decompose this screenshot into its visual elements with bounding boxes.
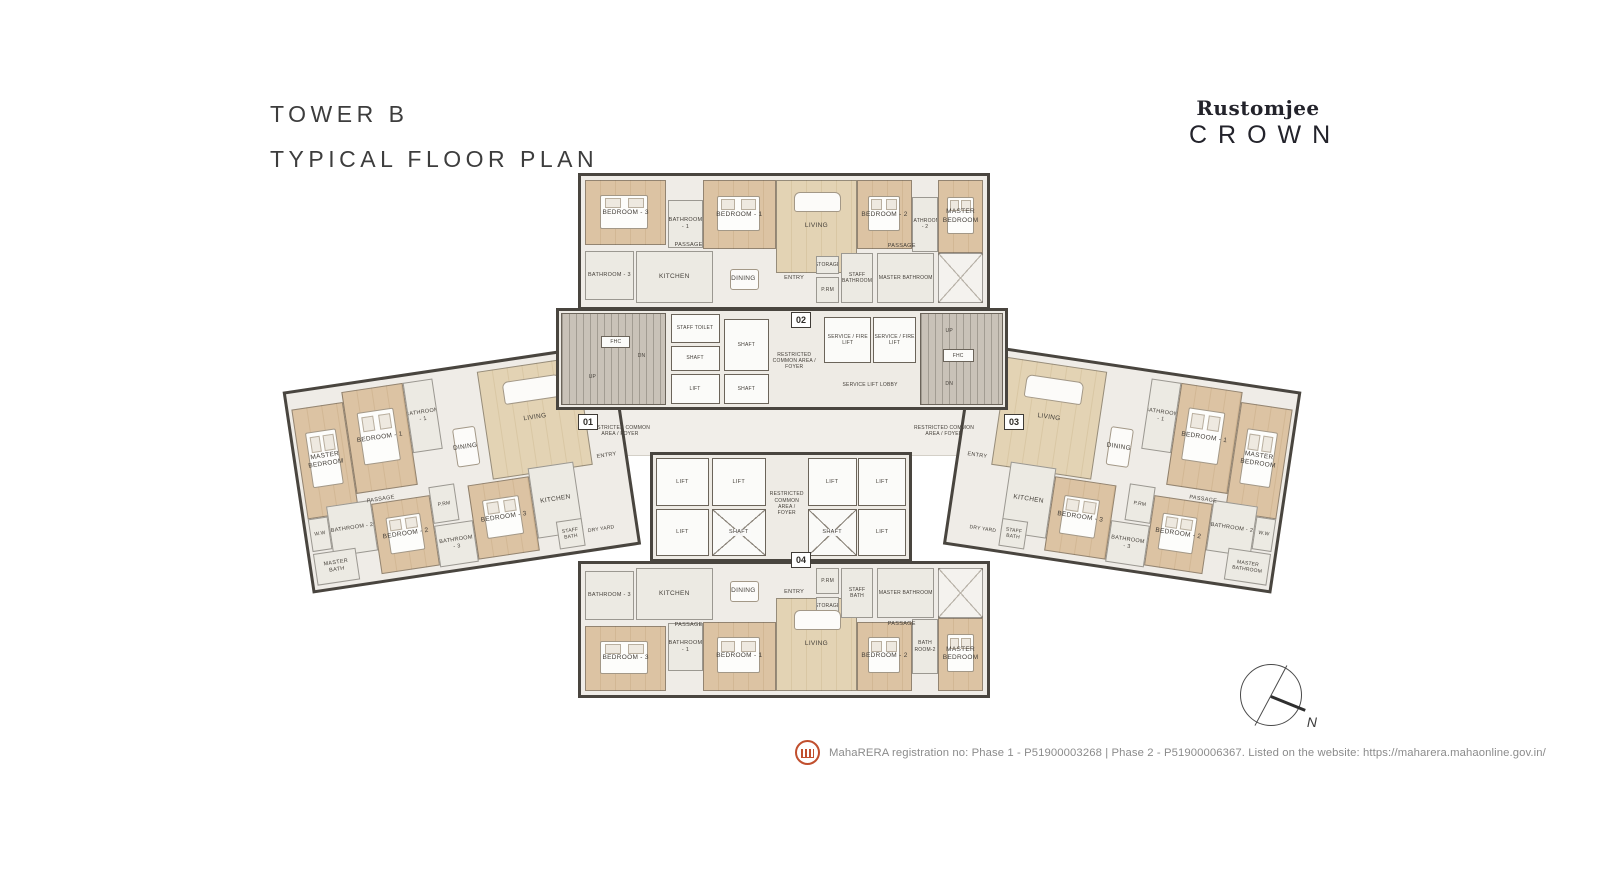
wing-unit-04: BEDROOM - 3BATHROOM - 1BEDROOM - 1LIVING… <box>578 561 990 698</box>
room-entry: ENTRY <box>774 253 815 303</box>
room-label: LIVING <box>1037 412 1061 423</box>
room-label: BATHROOM - 1 <box>1144 407 1179 426</box>
room-label: KITCHEN <box>540 494 572 507</box>
room-dn: DN <box>934 378 965 390</box>
room-dry-yard: DRY YARD <box>585 513 618 545</box>
room-label: SHAFT <box>738 342 755 348</box>
room-master-bedroom: MASTER BEDROOM <box>938 180 983 253</box>
maharera-badge-icon <box>795 740 820 765</box>
room-label: PASSAGE <box>888 243 916 250</box>
room-restricted-common-area-foyer: RESTRICTED COMMON AREA / FOYER <box>771 338 818 384</box>
room-dn: DN <box>626 349 657 362</box>
room-master-bathroom: MASTER BATHROOM <box>877 568 934 618</box>
room-label: KITCHEN <box>659 590 690 598</box>
unit-badge-03: 03 <box>1004 414 1024 430</box>
room-master-bathroom: MASTER BATHROOM <box>1224 548 1271 586</box>
room-label: MASTER BEDROOM <box>939 646 982 662</box>
room-label: LIFT <box>676 529 689 536</box>
room-label: W.W <box>314 530 326 538</box>
room-label: P.RM <box>821 287 834 293</box>
room-label: BEDROOM - 1 <box>356 431 403 446</box>
room-p-rm: P.RM <box>1124 483 1155 524</box>
room-label: BEDROOM - 1 <box>1181 431 1228 446</box>
unit-badge-01: 01 <box>578 414 598 430</box>
room-shaft: SHAFT <box>671 346 720 372</box>
room-label: BATHROOM - 3 <box>588 272 631 279</box>
room-bathroom-3: BATHROOM - 3 <box>434 520 479 567</box>
room-lift: LIFT <box>858 509 907 556</box>
room-label: P.RM <box>437 500 450 508</box>
sofa-icon <box>502 374 562 406</box>
room-bathroom-3: BATHROOM - 3 <box>1105 520 1150 567</box>
room-fhc: FHC <box>943 349 974 361</box>
room-lift: LIFT <box>712 458 766 506</box>
room-hatch <box>938 253 983 303</box>
room-label: UP <box>589 374 596 380</box>
room-label: BATHROOM - 3 <box>1108 534 1147 553</box>
room-master-bedroom: MASTER BEDROOM <box>938 618 983 691</box>
room-fhc: FHC <box>601 336 630 348</box>
room-label: ENTRY <box>967 452 988 462</box>
room-master-bathroom: MASTER BATHROOM <box>877 253 934 303</box>
room-label: SHAFT <box>820 529 844 536</box>
room-label: BEDROOM - 3 <box>603 209 649 217</box>
room-label: STAFF BATH <box>1001 526 1027 542</box>
room-up: UP <box>577 371 608 384</box>
unit-badge-02: 02 <box>791 312 811 328</box>
room-label: SHAFT <box>686 355 703 361</box>
room-label: RESTRICTED COMMON AREA / FOYER <box>913 425 976 438</box>
room-label: SERVICE / FIRE LIFT <box>874 334 914 347</box>
room-label: STAFF BATH <box>558 526 584 542</box>
room-lift: LIFT <box>858 458 907 506</box>
room-label: SERVICE / FIRE LIFT <box>825 334 870 347</box>
room-label: BATHROOM - 2 <box>330 522 373 535</box>
room-shaft: SHAFT <box>724 374 769 404</box>
room-p-rm: P.RM <box>428 483 459 524</box>
room-label: MASTER BATH <box>316 557 358 577</box>
room-label: MASTER BEDROOM <box>1232 449 1284 472</box>
room-label: BATHROOM - 1 <box>405 407 440 426</box>
room-label: DINING <box>731 587 756 595</box>
room-label: BEDROOM - 3 <box>1057 510 1104 525</box>
room-bathroom-3: BATHROOM - 3 <box>585 571 634 621</box>
core-lower: LIFTLIFTLIFTSHAFTRESTRICTED COMMON AREA … <box>650 452 912 562</box>
room-bedroom-3: BEDROOM - 3 <box>1044 476 1116 560</box>
room-label: LIFT <box>676 479 689 486</box>
room-label: UP <box>946 328 953 334</box>
room-label: BATHROOM - 2 <box>912 218 938 231</box>
room-staff-bath: STAFF BATH <box>556 518 586 549</box>
room-dry-yard: DRY YARD <box>966 513 999 545</box>
room-label: DINING <box>731 275 756 283</box>
room-staff-toilet: STAFF TOILET <box>671 314 720 343</box>
room-label: W.W <box>1258 530 1270 538</box>
room-service-lift-lobby: SERVICE LIFT LOBBY <box>824 367 915 403</box>
room-label: BEDROOM - 3 <box>603 654 649 662</box>
room-label: BEDROOM - 1 <box>716 211 762 219</box>
room-label: BATH ROOM-2 <box>913 640 937 653</box>
room-bedroom-3: BEDROOM - 3 <box>585 626 666 692</box>
room-service-fire-lift: SERVICE / FIRE LIFT <box>873 317 915 363</box>
room-dining: DINING <box>715 256 772 303</box>
room-label: BATHROOM - 1 <box>669 640 703 654</box>
room-label: BATHROOM - 3 <box>437 534 476 553</box>
room-label: FHC <box>610 339 621 345</box>
core-upper: UPDNFHCSTAFF TOILETSHAFTSHAFTLIFTSHAFTRE… <box>556 308 1008 410</box>
room-lift: LIFT <box>656 509 710 556</box>
sofa-icon <box>1024 374 1084 406</box>
room-label: ENTRY <box>784 275 804 282</box>
room-bedroom-3: BEDROOM - 3 <box>585 180 666 246</box>
room-label: LIVING <box>805 222 828 230</box>
room-label: PASSAGE <box>675 242 703 249</box>
room-staff-bath: STAFF BATH <box>841 568 873 618</box>
room-label: DRY YARD <box>969 524 996 534</box>
room-bedroom-2: BEDROOM - 2 <box>857 622 912 691</box>
room-label: MASTER BATHROOM <box>1227 558 1269 576</box>
room-hatch <box>938 568 983 618</box>
room-up: UP <box>934 324 965 336</box>
room-label: MASTER BEDROOM <box>939 208 982 224</box>
room-shaft: SHAFT <box>724 319 769 372</box>
room-label: LIFT <box>826 479 839 486</box>
room-label: LIFT <box>732 479 745 486</box>
room-label: SERVICE LIFT LOBBY <box>843 382 898 388</box>
room-storage: STORAGE <box>816 597 838 615</box>
sofa-icon <box>794 192 840 212</box>
room-shaft: SHAFT <box>808 509 857 556</box>
compass-rose: N <box>1240 664 1302 726</box>
room-lift: LIFT <box>656 458 710 506</box>
room-label: DINING <box>1106 442 1131 454</box>
room-label: BATHROOM - 2 <box>1210 522 1253 535</box>
room-bedroom-1: BEDROOM - 1 <box>703 622 776 691</box>
room-entry: ENTRY <box>774 568 815 618</box>
rera-text: MahaRERA registration no: Phase 1 - P519… <box>829 747 1546 759</box>
room-label: KITCHEN <box>659 273 690 281</box>
wing-unit-02: BEDROOM - 3BATHROOM - 1BEDROOM - 1LIVING… <box>578 173 990 310</box>
room-label: ENTRY <box>784 589 804 596</box>
room-label: P.RM <box>1133 500 1146 508</box>
room-label: MASTER BATHROOM <box>879 275 933 281</box>
room-bathroom-3: BATHROOM - 3 <box>585 251 634 301</box>
room-passage: PASSAGE <box>638 620 740 630</box>
room-label: RESTRICTED COMMON AREA / FOYER <box>771 352 818 371</box>
room-passage: PASSAGE <box>875 619 928 629</box>
room-p-rm: P.RM <box>816 568 838 594</box>
room-lift: LIFT <box>808 458 857 506</box>
page: TOWER B TYPICAL FLOOR PLAN Rustomjee CRO… <box>0 0 1600 888</box>
room-passage: PASSAGE <box>875 242 928 252</box>
room-label: BEDROOM - 1 <box>716 652 762 660</box>
room-label: FHC <box>953 353 964 359</box>
room-label: STORAGE <box>816 262 838 268</box>
room-label: MASTER BEDROOM <box>300 449 352 472</box>
room-label: LIFT <box>689 386 700 392</box>
room-label: RESTRICTED COMMON AREA / FOYER <box>768 491 805 516</box>
room-shaft: SHAFT <box>712 509 766 556</box>
room-label: SHAFT <box>738 386 755 392</box>
room-staff-bathroom: STAFF BATHROOM <box>841 253 873 303</box>
room-lift: LIFT <box>671 374 720 404</box>
room-label: P.RM <box>821 578 834 584</box>
compass-north-label: N <box>1307 714 1317 730</box>
room-label: STAFF BATHROOM <box>842 272 872 285</box>
room-dining: DINING <box>715 568 772 615</box>
room-p-rm: P.RM <box>816 277 838 303</box>
room-label: BEDROOM - 2 <box>861 211 907 219</box>
room-master-bath: MASTER BATH <box>313 548 360 586</box>
room-passage: PASSAGE <box>638 240 740 250</box>
room-label: LIFT <box>876 529 889 536</box>
room-bedroom-2: BEDROOM - 2 <box>372 495 441 574</box>
room-bedroom-3: BEDROOM - 3 <box>468 476 540 560</box>
room-label: STAFF BATH <box>842 587 872 600</box>
unit-badge-04: 04 <box>791 552 811 568</box>
room-service-fire-lift: SERVICE / FIRE LIFT <box>824 317 871 363</box>
room-restricted-common-area-foyer: RESTRICTED COMMON AREA / FOYER <box>768 478 805 530</box>
room-label: BEDROOM - 2 <box>861 652 907 660</box>
room-kitchen: KITCHEN <box>636 251 713 303</box>
rera-registration: MahaRERA registration no: Phase 1 - P519… <box>795 740 1546 765</box>
room-staff-bath: STAFF BATH <box>998 518 1028 549</box>
room-bedroom-1: BEDROOM - 1 <box>703 180 776 249</box>
room-kitchen: KITCHEN <box>636 568 713 620</box>
room-label: BEDROOM - 3 <box>480 510 527 525</box>
room-storage: STORAGE <box>816 256 838 274</box>
room-bedroom-2: BEDROOM - 2 <box>857 180 912 249</box>
room-label: DINING <box>453 442 478 454</box>
room-label: LIFT <box>876 479 889 486</box>
room-label: BEDROOM - 2 <box>1155 527 1202 542</box>
room-label: KITCHEN <box>1013 494 1045 507</box>
room-label: STORAGE <box>816 603 838 609</box>
room-bedroom-2: BEDROOM - 2 <box>1144 495 1213 574</box>
room-label: DN <box>638 353 646 359</box>
room-label: LIVING <box>523 412 547 423</box>
room-label: LIVING <box>805 640 828 648</box>
room-label: MASTER BATHROOM <box>879 590 933 596</box>
room-label: DN <box>945 381 953 387</box>
room-label: BATHROOM - 1 <box>669 217 703 231</box>
room-label: ENTRY <box>596 452 617 462</box>
room-label: STAFF TOILET <box>677 325 714 331</box>
room-label: PASSAGE <box>888 621 916 628</box>
room-label: BEDROOM - 2 <box>382 527 429 542</box>
room-label: BATHROOM - 3 <box>588 592 631 599</box>
room-label: DRY YARD <box>587 524 614 534</box>
room-label: SHAFT <box>727 529 751 536</box>
room-label: PASSAGE <box>675 622 703 629</box>
